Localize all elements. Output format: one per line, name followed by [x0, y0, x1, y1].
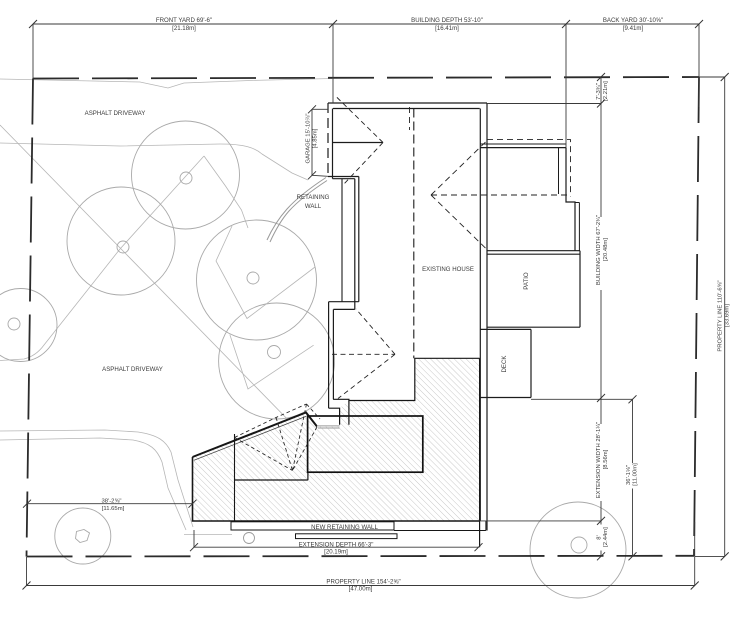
- svg-text:38'-2⅝": 38'-2⅝": [102, 499, 122, 505]
- svg-text:BUILDING DEPTH 53'-10": BUILDING DEPTH 53'-10": [411, 17, 483, 24]
- svg-text:RETAINING: RETAINING: [297, 194, 330, 201]
- svg-text:[20.48m]: [20.48m]: [603, 238, 609, 261]
- svg-text:PATIO: PATIO: [523, 272, 530, 290]
- svg-text:EXTENSION DEPTH 66'-3": EXTENSION DEPTH 66'-3": [299, 542, 374, 549]
- svg-text:PROPERTY LINE 110'-6⅝": PROPERTY LINE 110'-6⅝": [718, 280, 724, 351]
- svg-text:[20.19m]: [20.19m]: [324, 549, 348, 556]
- svg-text:DECK: DECK: [501, 356, 508, 373]
- svg-text:WALL: WALL: [305, 203, 322, 210]
- svg-text:NEW RETAINING WALL: NEW RETAINING WALL: [311, 524, 378, 531]
- svg-text:BACK YARD 30'-10⅝": BACK YARD 30'-10⅝": [603, 17, 663, 24]
- svg-text:[4.85m]: [4.85m]: [313, 128, 319, 148]
- svg-text:[11.65m]: [11.65m]: [102, 506, 125, 512]
- svg-text:7'-3¾": 7'-3¾": [596, 83, 602, 100]
- svg-text:ASPHALT DRIVEWAY: ASPHALT DRIVEWAY: [102, 366, 163, 373]
- svg-text:[2.21m]: [2.21m]: [603, 81, 609, 101]
- svg-text:BUILDING WIDTH 67'-2¾": BUILDING WIDTH 67'-2¾": [596, 215, 602, 285]
- svg-text:36'-1⅛": 36'-1⅛": [626, 465, 632, 485]
- svg-text:[47.00m]: [47.00m]: [349, 586, 373, 593]
- svg-text:[2.44m]: [2.44m]: [603, 527, 609, 547]
- svg-text:[11.00m]: [11.00m]: [633, 463, 639, 486]
- svg-text:EXISTING HOUSE: EXISTING HOUSE: [422, 266, 474, 273]
- svg-text:FRONT YARD 69'-6": FRONT YARD 69'-6": [156, 17, 212, 24]
- svg-text:[16.41m]: [16.41m]: [435, 25, 459, 32]
- svg-text:8': 8': [597, 535, 603, 539]
- svg-text:GARAGE 15'-10⅞": GARAGE 15'-10⅞": [306, 113, 312, 163]
- svg-text:EXTENSION WIDTH 28'-1¼": EXTENSION WIDTH 28'-1¼": [596, 422, 602, 499]
- svg-text:[21.18m]: [21.18m]: [172, 25, 196, 32]
- svg-text:PROPERTY LINE 154'-2⅝": PROPERTY LINE 154'-2⅝": [326, 579, 400, 586]
- svg-text:[8.56m]: [8.56m]: [603, 449, 609, 469]
- svg-text:[9.41m]: [9.41m]: [623, 25, 644, 32]
- svg-text:[33.69m]: [33.69m]: [725, 304, 731, 327]
- svg-text:ASPHALT DRIVEWAY: ASPHALT DRIVEWAY: [85, 110, 146, 117]
